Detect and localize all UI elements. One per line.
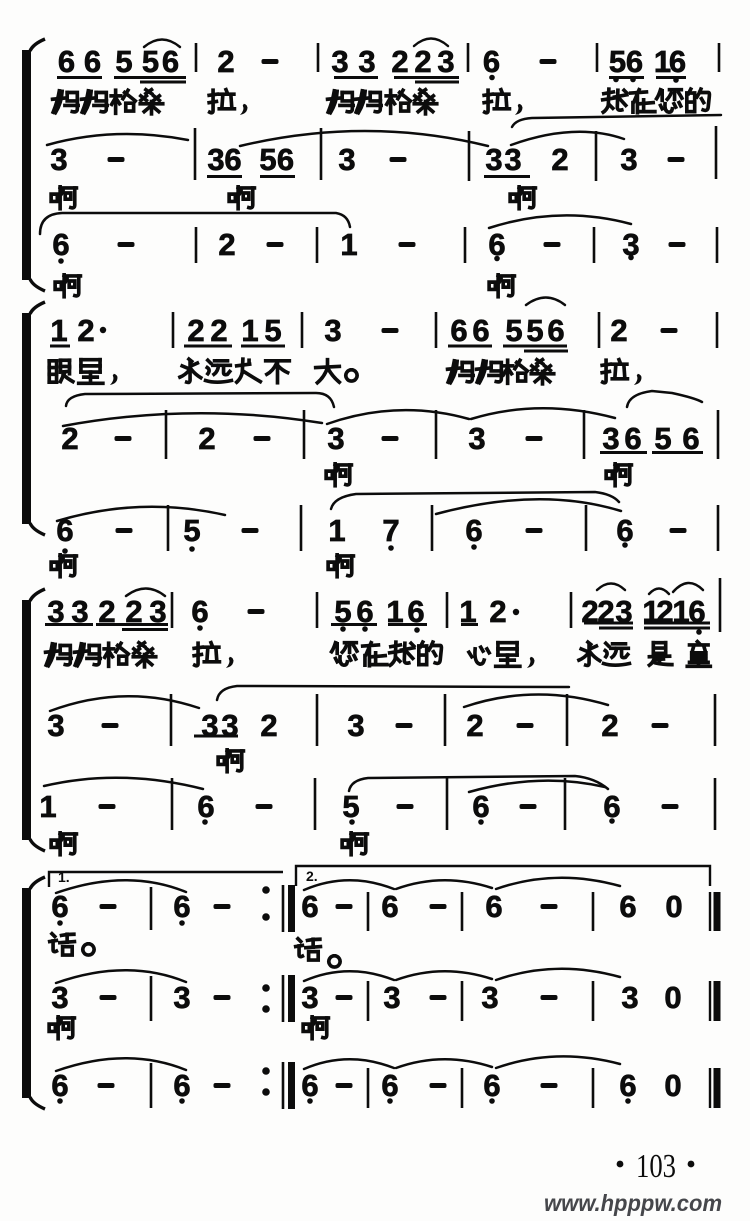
svg-text:3: 3 (383, 980, 400, 1015)
svg-text:5: 5 (142, 44, 159, 79)
svg-text:0: 0 (665, 889, 682, 924)
svg-text:6: 6 (682, 421, 699, 456)
svg-text:www.hpppw.com: www.hpppw.com (544, 1190, 722, 1216)
svg-text:6: 6 (547, 313, 564, 348)
svg-text:6: 6 (450, 313, 467, 348)
svg-text:2: 2 (489, 594, 506, 629)
svg-text:3: 3 (50, 142, 67, 177)
svg-text:6: 6 (619, 1068, 636, 1103)
svg-text:5: 5 (526, 313, 543, 348)
svg-text:3: 3 (621, 980, 638, 1015)
svg-text:6: 6 (485, 889, 502, 924)
svg-text:1: 1 (328, 513, 345, 548)
svg-text:6: 6 (472, 313, 489, 348)
svg-text:2: 2 (218, 227, 235, 262)
svg-text:6: 6 (52, 227, 69, 262)
svg-text:3: 3 (51, 980, 68, 1015)
svg-text:7: 7 (382, 513, 399, 548)
svg-text:5: 5 (264, 313, 281, 348)
svg-text:6: 6 (197, 789, 214, 824)
svg-text:6: 6 (669, 44, 686, 79)
svg-text:6: 6 (301, 889, 318, 924)
svg-text:6: 6 (84, 44, 101, 79)
svg-text:3: 3 (173, 980, 190, 1015)
svg-text:103: 103 (636, 1148, 676, 1185)
svg-text:6: 6 (619, 889, 636, 924)
svg-text:6: 6 (381, 889, 398, 924)
svg-text:6: 6 (51, 1068, 68, 1103)
svg-text:1: 1 (241, 313, 258, 348)
svg-text:2: 2 (217, 44, 234, 79)
svg-text:3: 3 (602, 421, 619, 456)
svg-text:3: 3 (201, 708, 218, 743)
svg-text:3: 3 (468, 421, 485, 456)
svg-text:3: 3 (47, 708, 64, 743)
svg-text:0: 0 (664, 1068, 681, 1103)
svg-text:2: 2 (601, 708, 618, 743)
svg-text:1: 1 (50, 313, 67, 348)
svg-text:3: 3 (221, 708, 238, 743)
svg-text:6: 6 (624, 421, 641, 456)
svg-text:3: 3 (301, 980, 318, 1015)
svg-text:6: 6 (224, 142, 241, 177)
svg-text:2: 2 (198, 421, 215, 456)
svg-text:6: 6 (483, 44, 500, 79)
svg-text:3: 3 (485, 142, 502, 177)
svg-text:6: 6 (173, 889, 190, 924)
svg-text:6: 6 (277, 142, 294, 177)
svg-text:3: 3 (347, 708, 364, 743)
svg-text:3: 3 (338, 142, 355, 177)
svg-text:5: 5 (115, 44, 132, 79)
svg-text:6: 6 (483, 1068, 500, 1103)
svg-text:2: 2 (77, 313, 94, 348)
svg-text:0: 0 (664, 980, 681, 1015)
svg-text:2: 2 (466, 708, 483, 743)
svg-text:3: 3 (358, 44, 375, 79)
svg-text:3: 3 (207, 142, 224, 177)
svg-text:3: 3 (437, 44, 454, 79)
svg-text:6: 6 (173, 1068, 190, 1103)
svg-text:6: 6 (472, 789, 489, 824)
svg-text:3: 3 (324, 313, 341, 348)
svg-text:5: 5 (183, 513, 200, 548)
svg-text:1: 1 (340, 227, 357, 262)
svg-text:6: 6 (162, 44, 179, 79)
svg-text:1.: 1. (58, 869, 70, 885)
svg-text:2: 2 (391, 44, 408, 79)
svg-text:1: 1 (39, 789, 56, 824)
svg-text:2: 2 (610, 313, 627, 348)
svg-text:3: 3 (620, 142, 637, 177)
svg-text:6: 6 (51, 889, 68, 924)
svg-text:3: 3 (504, 142, 521, 177)
svg-text:5: 5 (259, 142, 276, 177)
svg-text:3: 3 (327, 421, 344, 456)
svg-text:6: 6 (58, 44, 75, 79)
svg-text:2: 2 (260, 708, 277, 743)
svg-text:2.: 2. (306, 868, 318, 884)
svg-text:6: 6 (626, 44, 643, 79)
svg-text:2: 2 (187, 313, 204, 348)
svg-text:5: 5 (342, 789, 359, 824)
svg-text:2: 2 (414, 44, 431, 79)
svg-text:5: 5 (654, 421, 671, 456)
svg-text:6: 6 (191, 594, 208, 629)
svg-text:3: 3 (481, 980, 498, 1015)
svg-text:6: 6 (465, 513, 482, 548)
svg-text:5: 5 (505, 313, 522, 348)
svg-text:3: 3 (331, 44, 348, 79)
svg-text:2: 2 (210, 313, 227, 348)
svg-text:6: 6 (381, 1068, 398, 1103)
svg-text:5: 5 (609, 44, 626, 79)
svg-text:6: 6 (301, 1068, 318, 1103)
svg-text:2: 2 (551, 142, 568, 177)
